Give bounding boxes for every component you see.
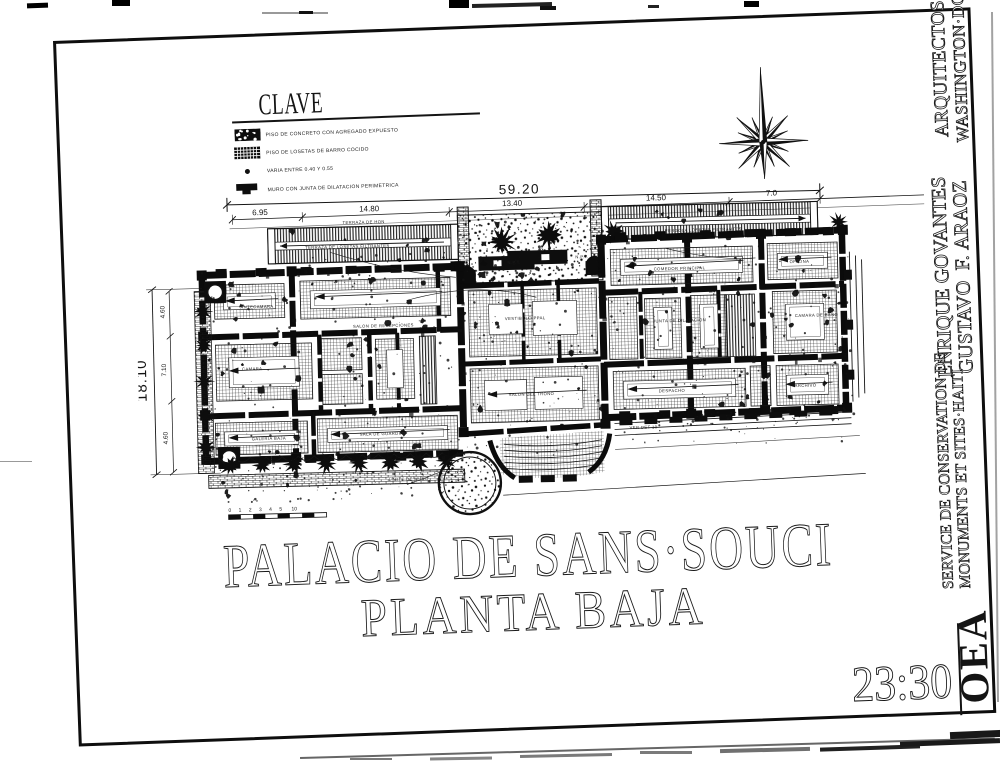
svg-text:59.20: 59.20 xyxy=(499,181,541,197)
svg-text:DESPACHO: DESPACHO xyxy=(659,388,686,394)
svg-text:14.50: 14.50 xyxy=(646,193,667,202)
svg-text:0 1 2 3 4 5: 0 1 2 3 4 5 xyxy=(228,507,285,514)
svg-text:N.P.T.: N.P.T. xyxy=(575,254,588,259)
svg-text:10: 10 xyxy=(291,506,297,512)
svg-text:ANTECAMARA: ANTECAMARA xyxy=(240,304,273,310)
svg-text:7.10: 7.10 xyxy=(161,363,168,376)
svg-text:SALON DE RECEPCIONES: SALON DE RECEPCIONES xyxy=(353,322,414,328)
svg-text:13.40: 13.40 xyxy=(502,199,523,208)
svg-text:VER DET 10: VER DET 10 xyxy=(630,424,658,430)
svg-text:CAMARA DE BANO: CAMARA DE BANO xyxy=(795,312,839,318)
svg-text:VESTIBULO PPAL: VESTIBULO PPAL xyxy=(505,315,546,321)
svg-text:CAMARA: CAMARA xyxy=(242,366,262,371)
svg-text:4.60: 4.60 xyxy=(159,305,166,318)
svg-text:GALERIA BAJA: GALERIA BAJA xyxy=(252,435,286,441)
svg-text:ARCHIVO: ARCHIVO xyxy=(795,383,817,389)
svg-text:18.10: 18.10 xyxy=(134,359,151,402)
svg-text:4.60: 4.60 xyxy=(163,431,170,444)
svg-text:6.95: 6.95 xyxy=(252,208,268,217)
svg-text:TERRAZA DE HON: TERRAZA DE HON xyxy=(342,219,384,225)
svg-text:7.0: 7.0 xyxy=(766,188,778,197)
svg-text:14.80: 14.80 xyxy=(359,204,380,213)
svg-text:SALA DE GUARDIA: SALA DE GUARDIA xyxy=(360,431,404,437)
